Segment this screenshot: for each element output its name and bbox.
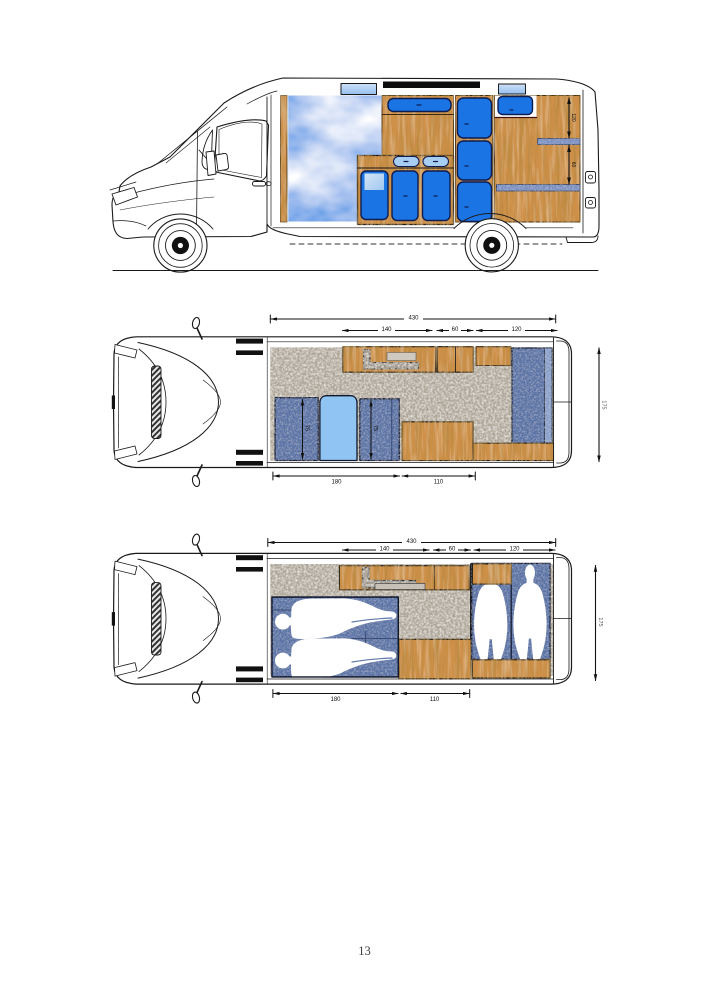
svg-text:140: 140 [379, 547, 390, 553]
svg-text:60: 60 [452, 327, 459, 333]
svg-text:180: 180 [330, 697, 341, 703]
svg-text:430: 430 [406, 539, 417, 545]
svg-text:140: 140 [381, 327, 392, 333]
svg-text:175: 175 [601, 400, 607, 409]
svg-text:110: 110 [434, 480, 444, 486]
svg-text:60: 60 [570, 162, 576, 168]
svg-text:110: 110 [430, 697, 440, 703]
svg-text:120: 120 [570, 113, 576, 122]
svg-text:120: 120 [511, 327, 522, 333]
svg-text:175: 175 [597, 617, 603, 626]
svg-text:120: 120 [509, 547, 520, 553]
svg-text:180: 180 [331, 480, 342, 486]
svg-text:60: 60 [449, 547, 456, 553]
svg-text:75: 75 [372, 425, 378, 431]
svg-text:430: 430 [408, 316, 419, 322]
svg-text:75: 75 [304, 425, 310, 431]
